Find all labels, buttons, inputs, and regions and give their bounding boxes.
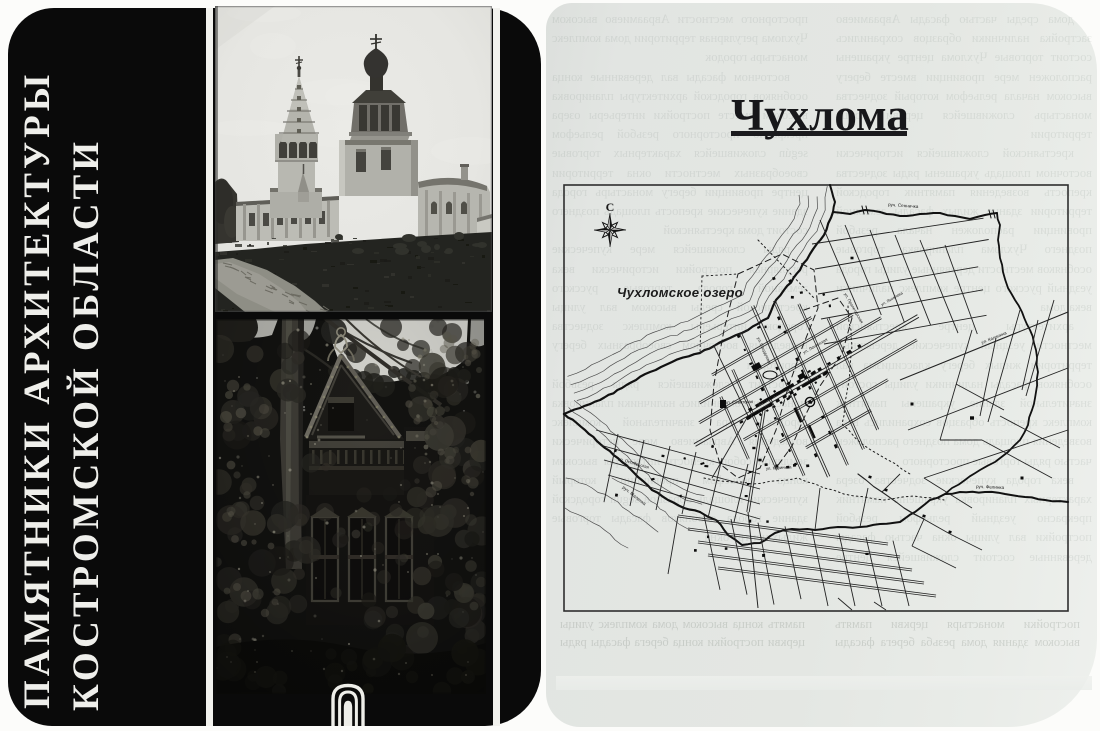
svg-text:Чухломское озеро: Чухломское озеро (617, 285, 743, 300)
svg-text:ул. Калинина: ул. Калинина (766, 464, 793, 471)
svg-text:руч. Сенничка: руч. Сенничка (888, 202, 919, 209)
svg-text:руч. Маленка: руч. Маленка (621, 485, 647, 507)
svg-text:ул. Советская: ул. Советская (725, 399, 754, 405)
svg-text:руч. Фелинка: руч. Фелинка (976, 484, 1005, 490)
svg-text:С: С (606, 200, 615, 214)
svg-text:ул. Ленинская: ул. Ленинская (802, 337, 828, 355)
